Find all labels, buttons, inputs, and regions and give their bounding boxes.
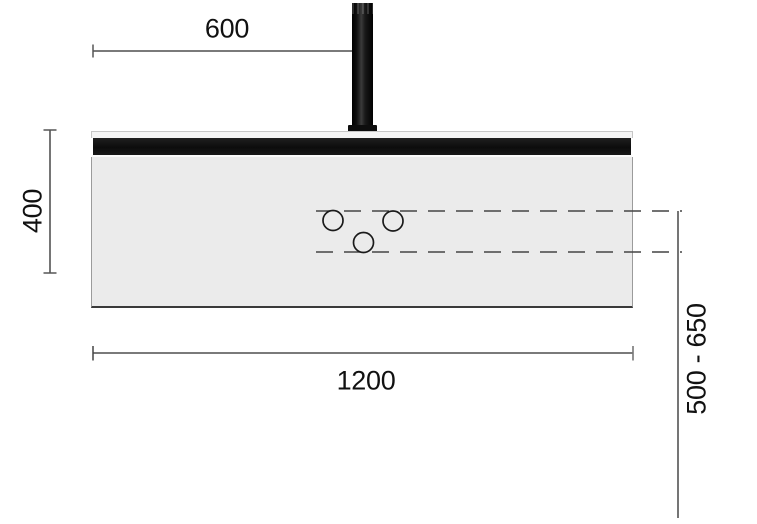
adjustment-holes: [323, 211, 403, 253]
dimension-overlay: [0, 0, 757, 524]
hole-circle: [383, 211, 403, 231]
diagram-canvas: 600 400 1200 500 - 650: [0, 0, 757, 524]
dimension-label-400: 400: [20, 189, 47, 233]
hole-circle: [354, 233, 374, 253]
dimension-label-600: 600: [205, 16, 249, 43]
dimension-line-600: [93, 45, 352, 58]
dimension-line-1200: [93, 346, 633, 361]
dimension-label-suspension-range: 500 - 650: [684, 303, 711, 414]
hole-circle: [323, 211, 343, 231]
dimension-label-1200: 1200: [337, 368, 396, 395]
